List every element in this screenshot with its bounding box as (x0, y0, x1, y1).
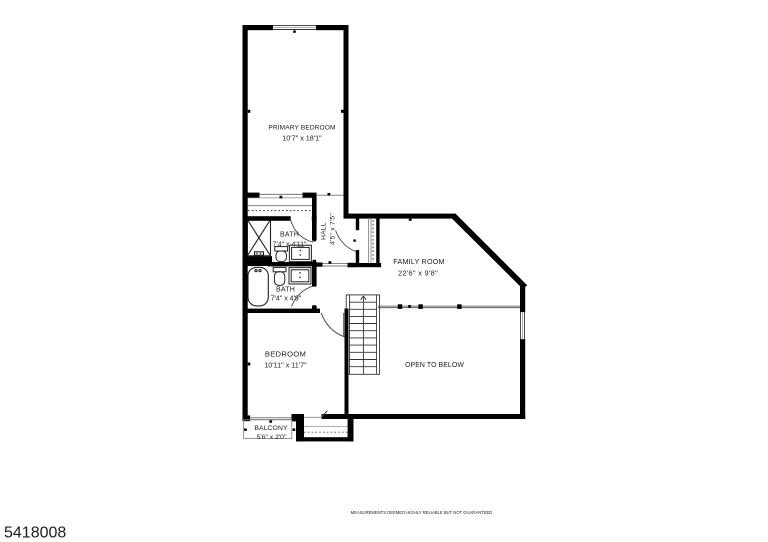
svg-text:MEASUREMENTS DEEMED HIGHLY REL: MEASUREMENTS DEEMED HIGHLY RELIABLE BUT … (351, 510, 493, 515)
svg-text:5'6" x 2'0": 5'6" x 2'0" (257, 434, 287, 441)
svg-text:BATH: BATH (276, 287, 295, 294)
svg-text:FAMILY ROOM: FAMILY ROOM (393, 257, 444, 266)
svg-text:5418008: 5418008 (4, 525, 66, 542)
svg-text:OPEN TO BELOW: OPEN TO BELOW (405, 362, 464, 369)
svg-text:4'5" x 7'5": 4'5" x 7'5" (330, 213, 337, 245)
svg-text:BEDROOM: BEDROOM (265, 350, 306, 359)
svg-text:10'11" x 11'7": 10'11" x 11'7" (264, 361, 307, 370)
svg-text:BATH: BATH (280, 232, 299, 239)
svg-text:HALL: HALL (321, 222, 328, 240)
svg-text:22'6" x 9'8": 22'6" x 9'8" (398, 269, 438, 278)
svg-text:BALCONY: BALCONY (254, 425, 288, 432)
svg-text:PRIMARY BEDROOM: PRIMARY BEDROOM (268, 125, 335, 132)
svg-text:10'7" x 18'1": 10'7" x 18'1" (282, 134, 322, 143)
